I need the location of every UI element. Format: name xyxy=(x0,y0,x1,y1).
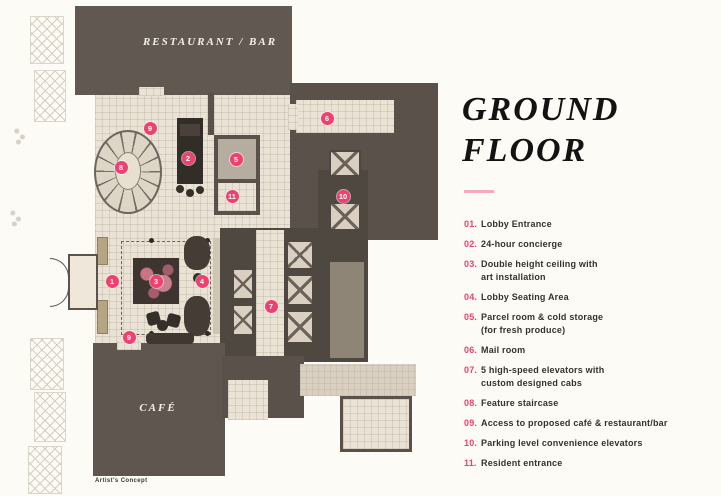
legend-item: 07.5 high-speed elevators with custom de… xyxy=(464,364,694,390)
legend-number: 01. xyxy=(464,218,481,231)
plan-marker-4: 4 xyxy=(196,275,209,288)
info-panel: GROUND FLOOR 01.Lobby Entrance02.24-hour… xyxy=(440,0,721,496)
legend-item: 09.Access to proposed café & restaurant/… xyxy=(464,417,694,430)
legend-number: 07. xyxy=(464,364,481,390)
legend-item: 11.Resident entrance xyxy=(464,457,694,470)
legend-number: 02. xyxy=(464,238,481,251)
legend-text: 24-hour concierge xyxy=(481,238,686,251)
plan-marker-3: 3 xyxy=(150,275,163,288)
legend-text: Parcel room & cold storage (for fresh pr… xyxy=(481,311,686,337)
legend-item: 01.Lobby Entrance xyxy=(464,218,694,231)
pink-divider xyxy=(464,190,494,193)
legend-number: 05. xyxy=(464,311,481,337)
legend-number: 09. xyxy=(464,417,481,430)
legend-item: 02.24-hour concierge xyxy=(464,238,694,251)
plan-markers: 12345678991011 xyxy=(0,0,445,496)
legend-text: 5 high-speed elevators with custom desig… xyxy=(481,364,686,390)
legend-number: 03. xyxy=(464,258,481,284)
legend-number: 11. xyxy=(464,457,481,470)
plan-marker-8: 8 xyxy=(115,161,128,174)
legend-list: 01.Lobby Entrance02.24-hour concierge03.… xyxy=(464,218,694,477)
plan-marker-10: 10 xyxy=(337,190,350,203)
legend-item: 10.Parking level convenience elevators xyxy=(464,437,694,450)
plan-marker-1: 1 xyxy=(106,275,119,288)
legend-text: Parking level convenience elevators xyxy=(481,437,686,450)
legend-text: Resident entrance xyxy=(481,457,686,470)
legend-item: 03.Double height ceiling with art instal… xyxy=(464,258,694,284)
legend-text: Mail room xyxy=(481,344,686,357)
plan-marker-6: 6 xyxy=(321,112,334,125)
legend-item: 08.Feature staircase xyxy=(464,397,694,410)
legend-text: Lobby Entrance xyxy=(481,218,686,231)
plan-marker-7: 7 xyxy=(265,300,278,313)
page-title-line2: FLOOR xyxy=(462,131,619,172)
page-title-line1: GROUND xyxy=(462,90,619,131)
floor-plan: RESTAURANT / BAR CAFÉ xyxy=(0,0,445,496)
plan-marker-9: 9 xyxy=(123,331,136,344)
plan-marker-9: 9 xyxy=(144,122,157,135)
legend-text: Access to proposed café & restaurant/bar xyxy=(481,417,686,430)
plan-marker-5: 5 xyxy=(230,153,243,166)
legend-item: 06.Mail room xyxy=(464,344,694,357)
legend-text: Feature staircase xyxy=(481,397,686,410)
legend-number: 04. xyxy=(464,291,481,304)
legend-number: 10. xyxy=(464,437,481,450)
legend-item: 05.Parcel room & cold storage (for fresh… xyxy=(464,311,694,337)
artists-concept-note: Artist's Concept xyxy=(95,478,148,484)
page-title: GROUND FLOOR xyxy=(462,90,619,172)
legend-text: Double height ceiling with art installat… xyxy=(481,258,686,284)
legend-number: 08. xyxy=(464,397,481,410)
plan-marker-11: 11 xyxy=(226,190,239,203)
legend-number: 06. xyxy=(464,344,481,357)
plan-marker-2: 2 xyxy=(182,152,195,165)
legend-item: 04.Lobby Seating Area xyxy=(464,291,694,304)
legend-text: Lobby Seating Area xyxy=(481,291,686,304)
